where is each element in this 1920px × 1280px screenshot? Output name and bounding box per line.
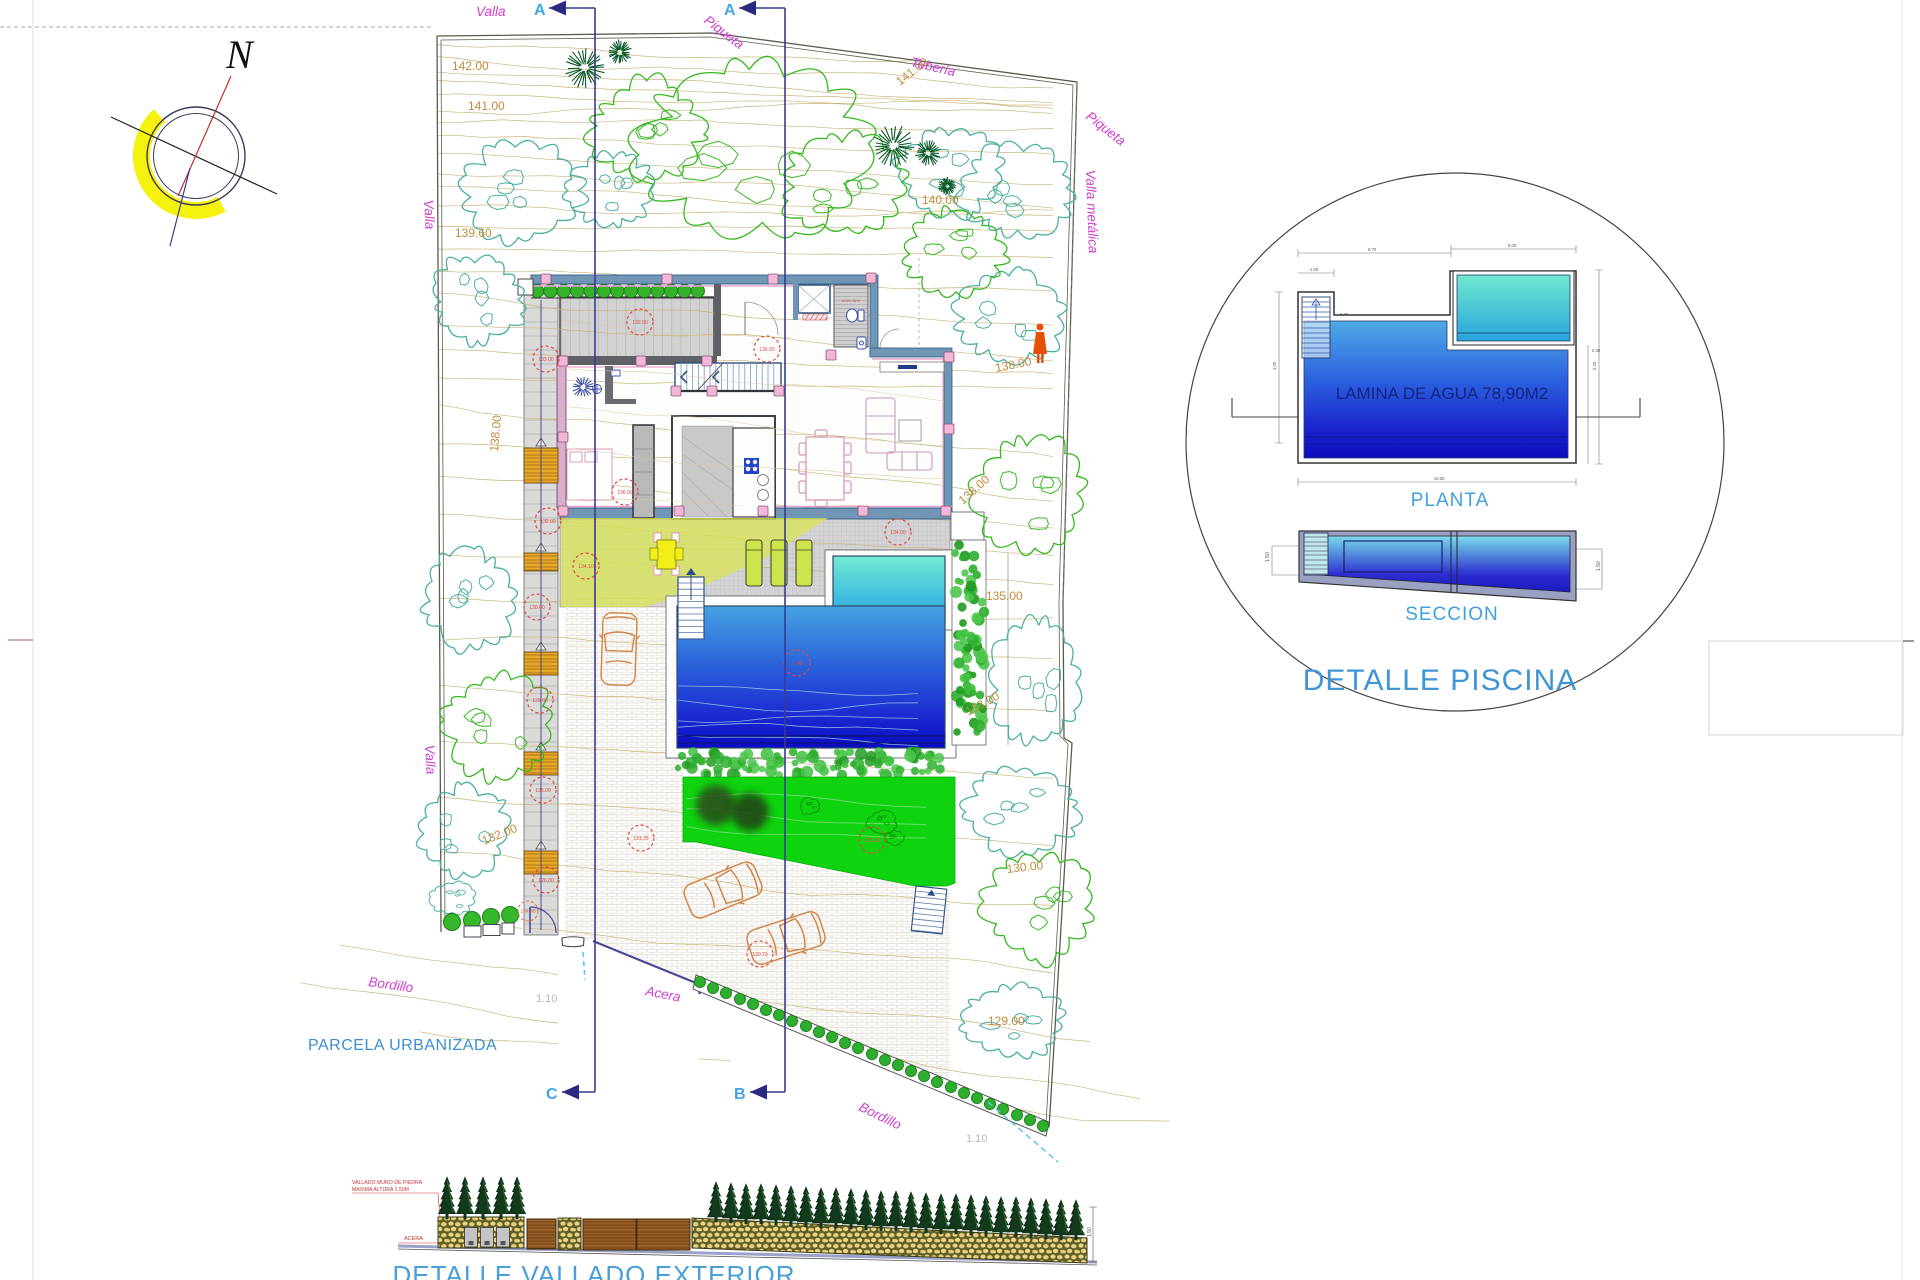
svg-text:134.10: 134.10: [578, 564, 594, 570]
svg-text:5.00: 5.00: [1508, 243, 1517, 248]
svg-text:132.00: 132.00: [632, 320, 648, 326]
svg-text:Valla metálica: Valla metálica: [1083, 170, 1101, 255]
svg-text:129.00: 129.00: [988, 1014, 1025, 1028]
svg-text:1.10: 1.10: [536, 993, 557, 1005]
svg-text:10.30: 10.30: [1434, 476, 1445, 481]
svg-text:133.00: 133.00: [538, 357, 554, 363]
svg-text:Valla: Valla: [476, 4, 506, 19]
svg-text:136.00: 136.00: [617, 490, 633, 496]
svg-text:134.00: 134.00: [890, 530, 906, 536]
svg-text:A: A: [724, 2, 736, 19]
svg-text:1.00: 1.00: [1310, 267, 1319, 272]
svg-text:SECCION: SECCION: [1405, 604, 1499, 625]
svg-text:134.46: 134.46: [520, 909, 536, 915]
svg-text:141.00: 141.00: [468, 99, 505, 113]
svg-text:Valla: Valla: [422, 744, 439, 775]
svg-text:132.00: 132.00: [540, 519, 556, 525]
svg-text:129.00: 129.00: [532, 698, 548, 704]
svg-text:139.60: 139.60: [455, 226, 492, 240]
svg-text:130.00: 130.00: [529, 605, 545, 611]
svg-text:MAXIMA ALTURA 1.50M: MAXIMA ALTURA 1.50M: [352, 1187, 409, 1193]
svg-text:C: C: [546, 1086, 558, 1103]
svg-text:1.10: 1.10: [966, 1133, 987, 1145]
svg-text:DETALLE VALLADO EXTERIOR: DETALLE VALLADO EXTERIOR: [392, 1260, 795, 1280]
svg-text:-1.45: -1.45: [791, 661, 803, 667]
svg-text:136.00: 136.00: [759, 347, 775, 353]
svg-text:140.00: 140.00: [922, 193, 959, 207]
svg-text:ACERA: ACERA: [404, 1236, 423, 1242]
svg-text:135.00: 135.00: [864, 838, 880, 844]
svg-text:128.00: 128.00: [535, 788, 551, 794]
svg-text:0.30: 0.30: [1592, 348, 1601, 353]
svg-text:130.70: 130.70: [752, 952, 768, 958]
svg-text:LAMINA DE AGUA 78,90M2: LAMINA DE AGUA 78,90M2: [1336, 384, 1549, 403]
svg-text:N: N: [225, 32, 255, 77]
svg-text:DETALLE PISCINA: DETALLE PISCINA: [1303, 664, 1578, 697]
svg-text:131.25: 131.25: [633, 836, 649, 842]
svg-text:1.50: 1.50: [1596, 561, 1602, 571]
svg-text:B: B: [734, 1086, 746, 1103]
svg-text:126.00: 126.00: [538, 878, 554, 884]
svg-text:Valla: Valla: [421, 199, 438, 230]
svg-text:4.00: 4.00: [1272, 361, 1277, 370]
svg-text:5.20: 5.20: [1592, 361, 1597, 370]
svg-text:1.50: 1.50: [1265, 552, 1271, 562]
svg-text:A: A: [534, 2, 546, 19]
svg-text:VALLADO MURO DE PIEDRA: VALLADO MURO DE PIEDRA: [352, 1180, 423, 1186]
svg-text:aseo.tipo: aseo.tipo: [842, 298, 861, 303]
svg-text:PLANTA: PLANTA: [1411, 490, 1490, 511]
svg-text:142.00: 142.00: [452, 59, 489, 73]
svg-text:1.50: 1.50: [1087, 1227, 1093, 1237]
svg-text:135.00: 135.00: [986, 589, 1023, 603]
svg-text:PARCELA URBANIZADA: PARCELA URBANIZADA: [308, 1037, 497, 1054]
svg-text:6.70: 6.70: [1368, 247, 1377, 252]
